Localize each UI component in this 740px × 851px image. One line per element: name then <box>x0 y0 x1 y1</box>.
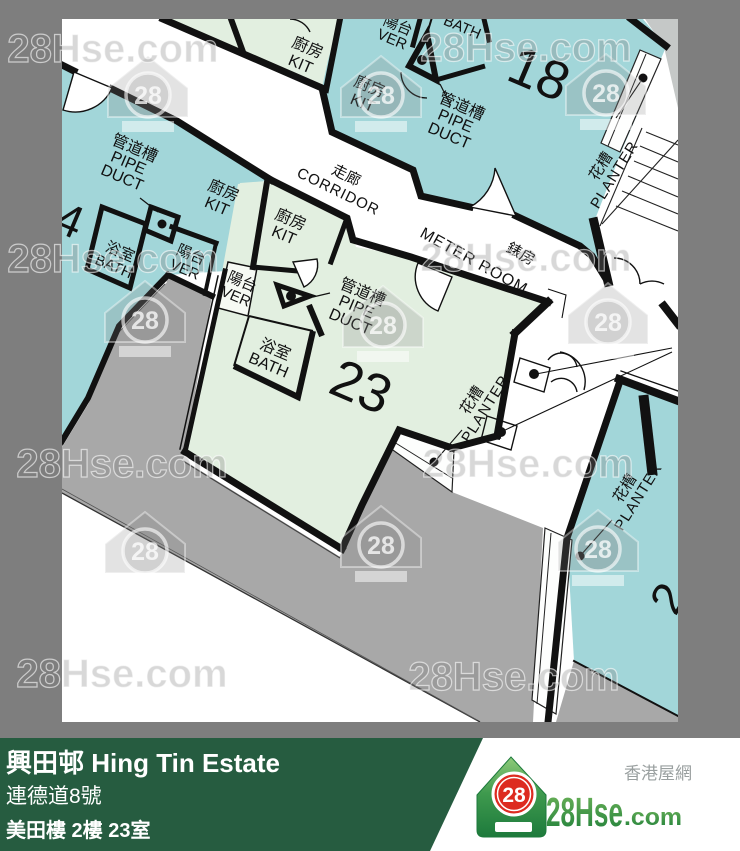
svg-text:香港屋網: 香港屋網 <box>624 764 692 783</box>
svg-text:28: 28 <box>367 532 395 560</box>
svg-text:興田邨 Hing Tin Estate: 興田邨 Hing Tin Estate <box>6 748 280 778</box>
svg-text:美田樓 2樓 23室: 美田樓 2樓 23室 <box>6 818 150 842</box>
svg-text:28: 28 <box>367 82 395 110</box>
svg-text:28Hse.com: 28Hse.com <box>16 442 227 486</box>
svg-text:28: 28 <box>502 784 526 807</box>
svg-text:28Hse.com: 28Hse.com <box>16 652 227 696</box>
svg-text:28: 28 <box>584 536 612 564</box>
svg-text:28Hse: 28Hse <box>546 789 623 835</box>
svg-text:28Hse.com: 28Hse.com <box>7 27 218 71</box>
svg-text:28Hse.com: 28Hse.com <box>7 237 218 281</box>
svg-text:連德道8號: 連德道8號 <box>6 785 102 808</box>
svg-text:28: 28 <box>592 80 620 108</box>
svg-text:28: 28 <box>594 309 622 337</box>
svg-text:28Hse.com: 28Hse.com <box>420 26 631 70</box>
svg-text:28Hse.com: 28Hse.com <box>408 655 619 699</box>
svg-text:.com: .com <box>624 804 682 831</box>
svg-text:28Hse.com: 28Hse.com <box>422 442 633 486</box>
svg-text:28: 28 <box>131 538 159 566</box>
svg-text:28Hse.com: 28Hse.com <box>420 236 631 280</box>
svg-text:28: 28 <box>131 307 159 335</box>
svg-text:28: 28 <box>369 312 397 340</box>
svg-text:28: 28 <box>134 82 162 110</box>
